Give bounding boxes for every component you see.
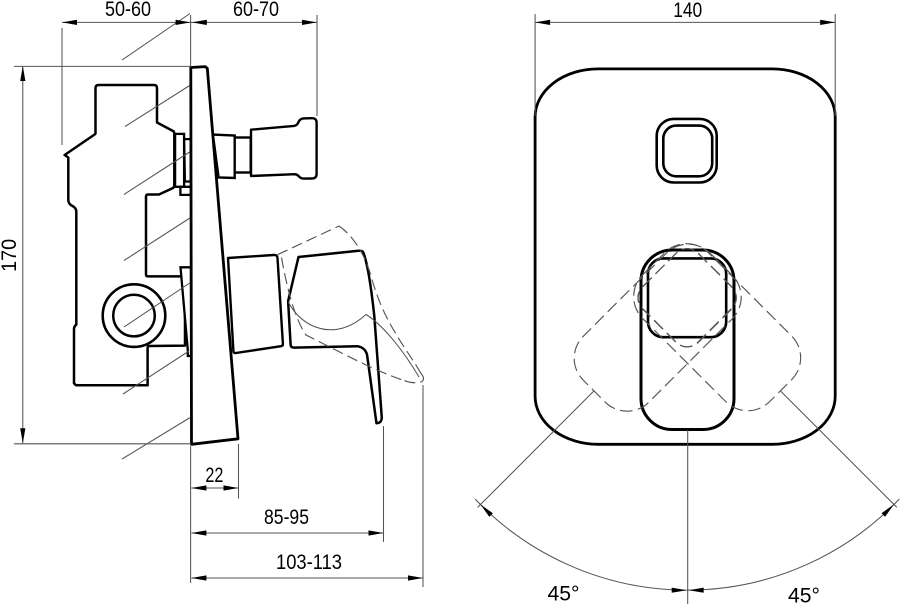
svg-text:85-95: 85-95 [264,506,309,529]
svg-text:50-60: 50-60 [105,0,151,21]
svg-text:170: 170 [0,239,21,272]
svg-text:103-113: 103-113 [276,551,342,574]
svg-text:45°: 45° [548,583,580,605]
svg-text:140: 140 [673,0,702,22]
svg-text:45°: 45° [788,585,820,605]
svg-text:60-70: 60-70 [233,0,279,21]
svg-text:22: 22 [205,464,223,487]
